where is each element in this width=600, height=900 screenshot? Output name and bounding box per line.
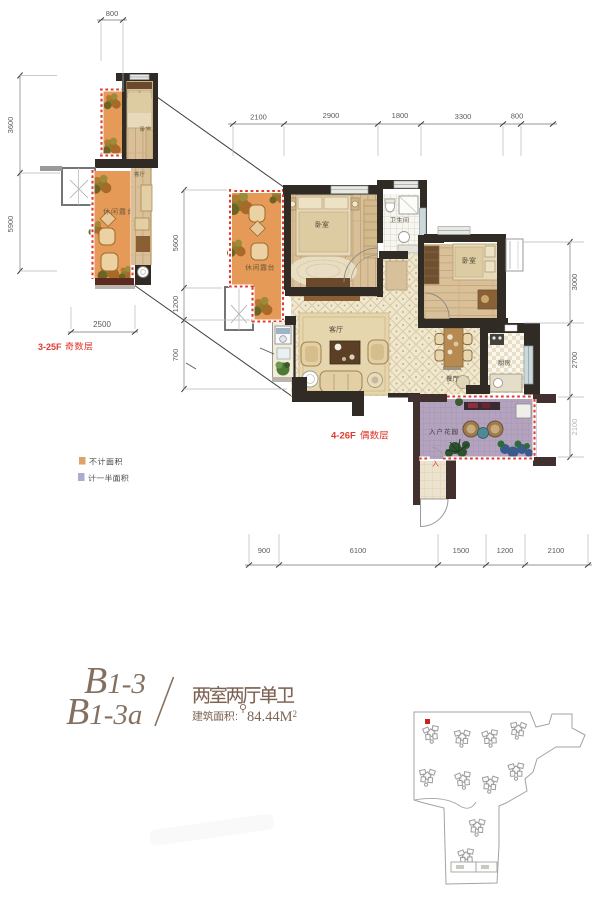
svg-text:1200: 1200 bbox=[171, 296, 180, 313]
svg-text:2500: 2500 bbox=[93, 320, 111, 329]
svg-text:1200: 1200 bbox=[497, 546, 514, 555]
svg-text:800: 800 bbox=[511, 112, 524, 121]
svg-text:1500: 1500 bbox=[453, 546, 470, 555]
svg-text:84.44M2: 84.44M2 bbox=[247, 709, 297, 725]
svg-text:5900: 5900 bbox=[6, 216, 15, 233]
svg-text:4-26F: 4-26F bbox=[331, 431, 356, 442]
svg-text:3-25F: 3-25F bbox=[38, 342, 62, 352]
svg-text:2100: 2100 bbox=[548, 546, 565, 555]
svg-text:3000: 3000 bbox=[570, 274, 579, 291]
svg-text:6100: 6100 bbox=[350, 546, 367, 555]
svg-text:1800: 1800 bbox=[392, 111, 409, 120]
svg-text:2700: 2700 bbox=[570, 352, 579, 369]
svg-text:3300: 3300 bbox=[455, 112, 472, 121]
svg-text:5600: 5600 bbox=[171, 235, 180, 252]
svg-text:2100: 2100 bbox=[570, 419, 579, 436]
svg-text:700: 700 bbox=[171, 349, 180, 362]
svg-text:3600: 3600 bbox=[6, 117, 15, 134]
svg-text::: : bbox=[235, 711, 238, 723]
svg-text:2100: 2100 bbox=[250, 113, 267, 122]
svg-text:900: 900 bbox=[258, 546, 271, 555]
svg-text:800: 800 bbox=[106, 9, 119, 18]
svg-text:2900: 2900 bbox=[323, 111, 340, 120]
